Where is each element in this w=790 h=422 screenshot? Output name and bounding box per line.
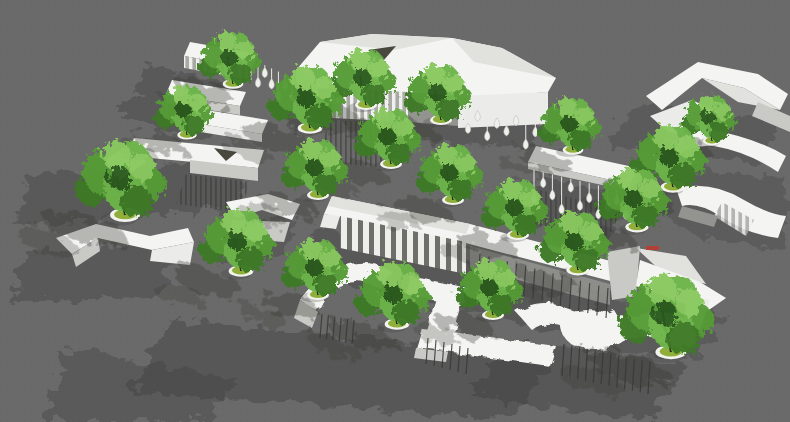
architectural-model-viewport: [0, 0, 790, 422]
site-model-canvas: [0, 0, 790, 422]
